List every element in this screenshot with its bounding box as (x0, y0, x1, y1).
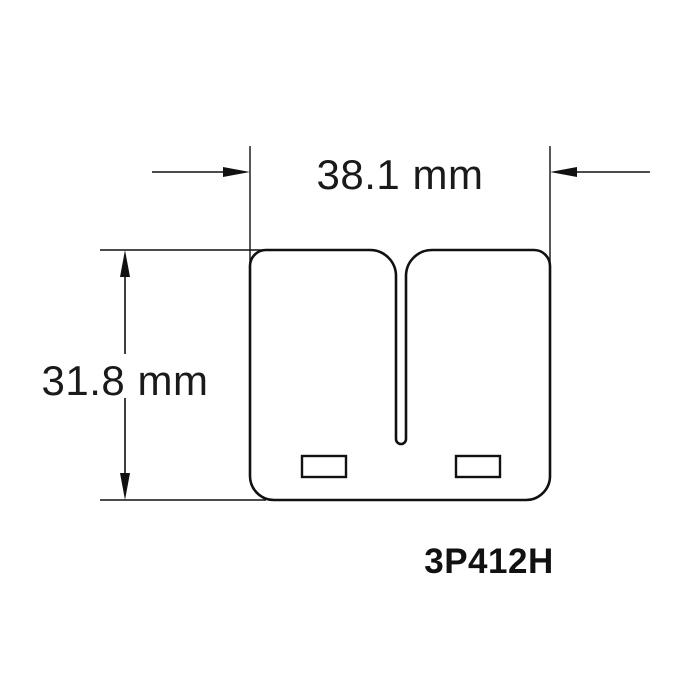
width-dimension-group: 38.1 mm (152, 146, 650, 263)
height-dimension-group: 31.8 mm (42, 250, 266, 500)
width-arrowhead-left (223, 167, 250, 177)
drawing-canvas: 38.1 mm 31.8 mm 3P412H (0, 0, 700, 700)
height-arrowhead-bottom (120, 473, 130, 500)
height-arrowhead-top (120, 250, 130, 277)
right-mount-hole (456, 456, 500, 477)
width-arrowhead-right (550, 167, 577, 177)
reed-petal-outline (250, 250, 550, 500)
width-dimension-label: 38.1 mm (317, 151, 484, 198)
part-number-label: 3P412H (424, 542, 553, 581)
part-outline-group (250, 250, 550, 500)
technical-drawing: 38.1 mm 31.8 mm 3P412H (0, 0, 700, 700)
height-dimension-label: 31.8 mm (42, 357, 209, 404)
left-mount-hole (302, 456, 346, 477)
